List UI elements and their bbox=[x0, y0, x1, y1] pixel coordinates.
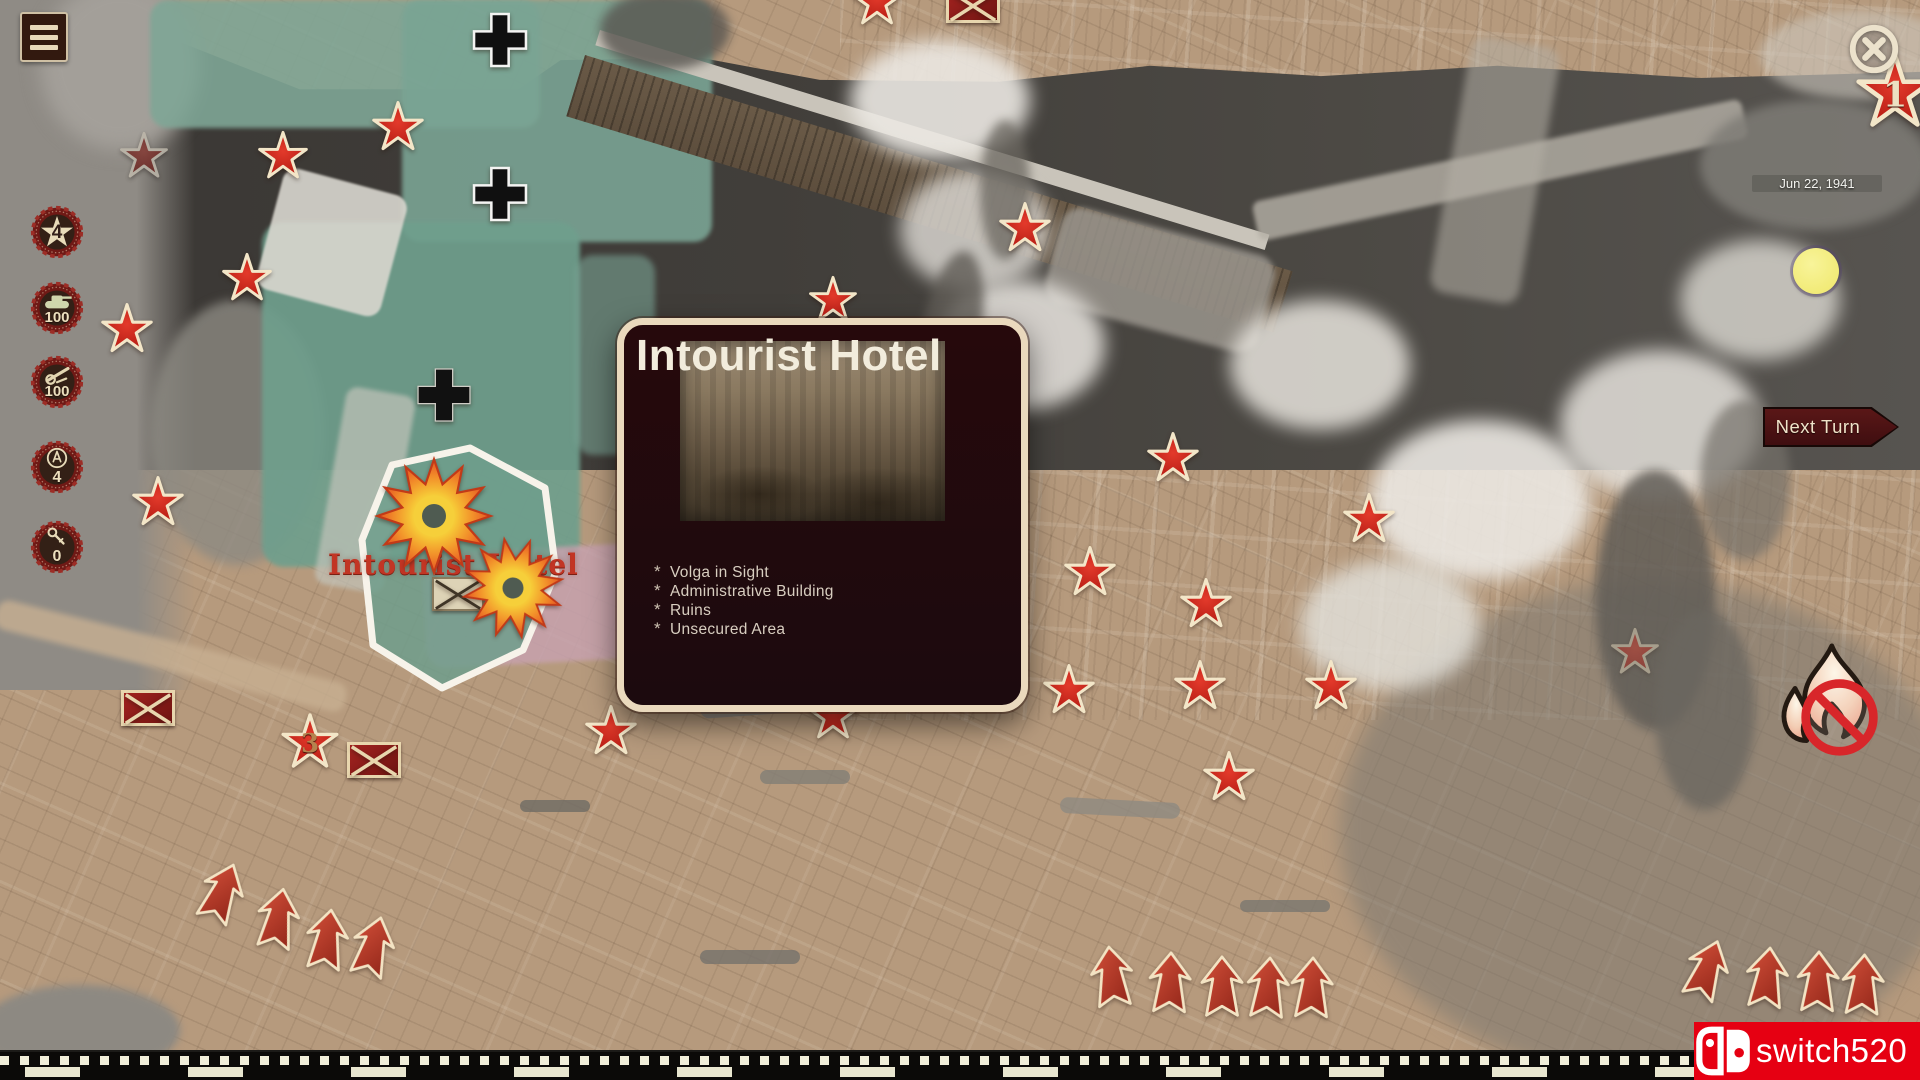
soviet-star-marker[interactable] bbox=[370, 99, 426, 155]
soviet-star-marker[interactable] bbox=[220, 251, 274, 305]
unit-count-label: 3 bbox=[301, 729, 319, 759]
nintendo-switch-icon bbox=[1694, 1023, 1756, 1079]
resource-infantry-badge[interactable]: 100 bbox=[30, 281, 84, 335]
bullet-icon: * bbox=[654, 601, 670, 618]
resource-value: 100 bbox=[30, 309, 84, 326]
assault-arrow-icon bbox=[1089, 945, 1135, 1009]
feature-item: *Unsecured Area bbox=[654, 620, 834, 639]
unit-count-label: 1 bbox=[1883, 75, 1907, 116]
hamburger-menu-icon[interactable] bbox=[20, 12, 68, 62]
explosion-icon bbox=[461, 536, 566, 641]
soviet-star-marker[interactable] bbox=[583, 703, 639, 759]
soviet-star-marker[interactable] bbox=[850, 0, 904, 29]
close-icon[interactable] bbox=[1845, 20, 1903, 78]
soviet-star-marker[interactable] bbox=[1145, 430, 1201, 486]
soviet-star-marker[interactable]: 3 bbox=[279, 711, 341, 773]
film-strip-border bbox=[0, 1050, 1920, 1080]
resource-value: 4 bbox=[30, 469, 84, 487]
resource-value: 4 bbox=[30, 222, 84, 244]
no-fire-icon bbox=[1768, 642, 1884, 758]
assault-arrow-icon bbox=[1199, 955, 1245, 1019]
assault-arrow-icon bbox=[1684, 938, 1730, 1002]
resource-abilities-badge[interactable]: 4 bbox=[30, 440, 84, 494]
soviet-star-marker[interactable] bbox=[1062, 544, 1118, 600]
german-cross-marker[interactable] bbox=[472, 166, 528, 222]
feature-text: Ruins bbox=[670, 601, 711, 620]
resource-artillery-badge[interactable]: 100 bbox=[30, 355, 84, 409]
bullet-icon: * bbox=[654, 563, 670, 580]
assault-arrow-icon bbox=[1840, 953, 1886, 1017]
assault-arrow-icon bbox=[350, 915, 396, 979]
feature-item: *Ruins bbox=[654, 601, 834, 620]
popup-title: Intourist Hotel bbox=[624, 331, 1021, 381]
destroyed-unit-marker[interactable] bbox=[347, 742, 401, 778]
soviet-star-marker[interactable] bbox=[997, 200, 1053, 256]
soviet-star-marker[interactable] bbox=[1041, 662, 1097, 718]
assault-arrow-icon bbox=[255, 887, 301, 951]
game-date: Jun 22, 1941 bbox=[1752, 175, 1882, 192]
watermark: switch520 bbox=[1694, 1022, 1920, 1080]
resource-value: 100 bbox=[30, 383, 84, 400]
soviet-star-marker[interactable] bbox=[256, 129, 310, 183]
soviet-star-marker[interactable] bbox=[130, 474, 186, 530]
feature-item: *Administrative Building bbox=[654, 582, 834, 601]
feature-text: Unsecured Area bbox=[670, 620, 785, 639]
assault-arrow-icon bbox=[1795, 950, 1841, 1014]
german-cross-marker[interactable] bbox=[416, 367, 472, 423]
assault-arrow-icon bbox=[199, 861, 245, 925]
yellow-event-marker[interactable] bbox=[1793, 248, 1839, 294]
german-cross-marker[interactable] bbox=[472, 12, 528, 68]
bullet-icon: * bbox=[654, 582, 670, 599]
resource-value: 0 bbox=[30, 548, 84, 566]
next-turn-label: Next Turn bbox=[1765, 416, 1871, 438]
assault-arrow-icon bbox=[304, 908, 350, 972]
watermark-text: switch520 bbox=[1756, 1032, 1907, 1070]
next-turn-button[interactable]: Next Turn bbox=[1763, 407, 1899, 447]
game-screen: Intourist Hotel 31 Intourist Hotel *Volg… bbox=[0, 0, 1920, 1080]
feature-item: *Volga in Sight bbox=[654, 563, 834, 582]
resource-rank-badge[interactable]: 4 bbox=[30, 205, 84, 259]
film-perforations bbox=[0, 1056, 1920, 1065]
feature-text: Administrative Building bbox=[670, 582, 834, 601]
destroyed-unit-marker[interactable] bbox=[946, 0, 1000, 23]
menu-bar bbox=[30, 35, 58, 40]
bullet-icon: * bbox=[654, 620, 670, 637]
assault-arrow-icon bbox=[1289, 956, 1335, 1020]
film-frames bbox=[0, 1067, 1920, 1077]
menu-bar bbox=[30, 25, 58, 30]
destroyed-unit-marker[interactable] bbox=[121, 690, 175, 726]
assault-arrow-icon bbox=[1245, 956, 1291, 1020]
resource-keys-badge[interactable]: 0 bbox=[30, 520, 84, 574]
location-popup[interactable]: Intourist Hotel *Volga in Sight*Administ… bbox=[617, 318, 1028, 712]
ability-circle-icon bbox=[45, 446, 69, 470]
soviet-star-marker[interactable] bbox=[1341, 491, 1397, 547]
key-icon bbox=[45, 525, 69, 549]
feature-text: Volga in Sight bbox=[670, 563, 769, 582]
artillery-gun-icon bbox=[40, 363, 74, 385]
menu-bar bbox=[30, 45, 58, 50]
soviet-star-marker[interactable] bbox=[1178, 576, 1234, 632]
soviet-star-marker[interactable] bbox=[118, 130, 170, 182]
soviet-star-marker[interactable] bbox=[99, 301, 155, 357]
soviet-star-marker[interactable] bbox=[1609, 626, 1661, 678]
soviet-star-marker[interactable] bbox=[1201, 749, 1257, 805]
assault-arrow-icon bbox=[1147, 951, 1193, 1015]
soviet-star-marker[interactable] bbox=[1172, 658, 1228, 714]
feature-list: *Volga in Sight*Administrative Building*… bbox=[654, 563, 834, 639]
soviet-star-marker[interactable] bbox=[1303, 658, 1359, 714]
assault-arrow-icon bbox=[1744, 946, 1790, 1010]
